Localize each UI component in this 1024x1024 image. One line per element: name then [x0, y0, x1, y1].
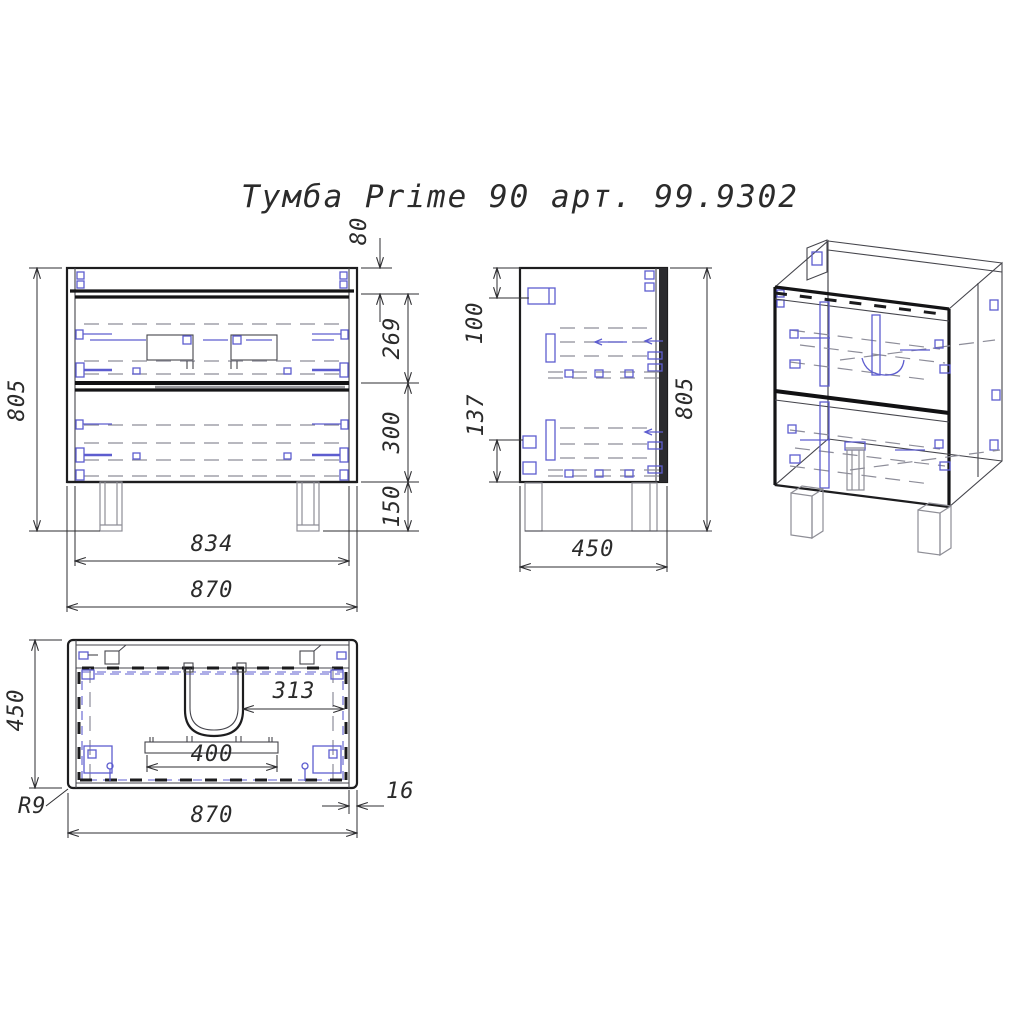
drawing-title: Тумба Prime 90 арт. 99.9302: [241, 179, 799, 215]
front-upper-drawer: [75, 297, 349, 377]
top-siphon-cutout: [184, 663, 246, 742]
technical-drawing-page: Тумба Prime 90 арт. 99.9302: [0, 0, 1024, 1024]
side-view: 100 137 805 450: [463, 268, 712, 572]
side-wall-bracket: [519, 288, 555, 304]
front-inner-width-label: 834: [191, 532, 234, 557]
top-dim-plate: 400: [147, 742, 277, 772]
front-dim-height: 805: [5, 268, 100, 531]
front-lower-drawer-label: 300: [380, 411, 405, 455]
front-height-label: 805: [5, 379, 30, 422]
front-cabinet-body: [67, 268, 357, 482]
top-overall-width-label: 870: [191, 803, 234, 828]
side-lower-drawer-hidden: [523, 420, 663, 477]
top-dim-depth: 450: [4, 640, 62, 788]
front-lower-drawer: [67, 390, 357, 482]
top-dim-cutout: 313: [243, 679, 344, 709]
side-dim-lower: 137: [464, 394, 523, 482]
top-dim-radius: R9: [18, 789, 68, 819]
front-legs-label: 150: [380, 485, 405, 528]
side-dim-height: 805: [670, 268, 712, 531]
side-depth-label: 450: [572, 537, 615, 562]
side-legs: [525, 483, 712, 531]
side-body: [520, 268, 667, 482]
side-upper-drawer-hidden: [546, 328, 663, 378]
top-dim-width: 870: [68, 793, 357, 838]
iso-rails-and-dividers: [775, 287, 949, 507]
front-overall-width-label: 870: [191, 578, 234, 603]
isometric-view: [775, 240, 1002, 555]
top-cutout-offset-label: 313: [272, 679, 316, 704]
top-view: 450 313 400 16 R9 870: [4, 640, 415, 838]
front-upper-drawer-label: 269: [380, 317, 405, 360]
iso-panels: [775, 240, 1002, 507]
side-dim-bracket: 100: [463, 268, 528, 344]
top-thickness-label: 16: [386, 779, 415, 804]
front-view: 805 80 269 300 150 834 870: [5, 217, 419, 612]
top-radius-label: R9: [18, 794, 47, 819]
top-dim-thickness: 16: [322, 779, 415, 814]
side-lower-span-label: 137: [464, 394, 489, 437]
top-plate-width-label: 400: [191, 742, 234, 767]
side-bracket-offset-label: 100: [463, 302, 488, 345]
side-height-label: 805: [673, 377, 698, 420]
front-drawer-divider: [75, 383, 349, 387]
top-depth-label: 450: [4, 689, 29, 732]
drawing-canvas: Тумба Prime 90 арт. 99.9302: [0, 0, 1024, 1024]
front-toprail-label: 80: [347, 217, 372, 246]
front-legs: [100, 482, 319, 531]
